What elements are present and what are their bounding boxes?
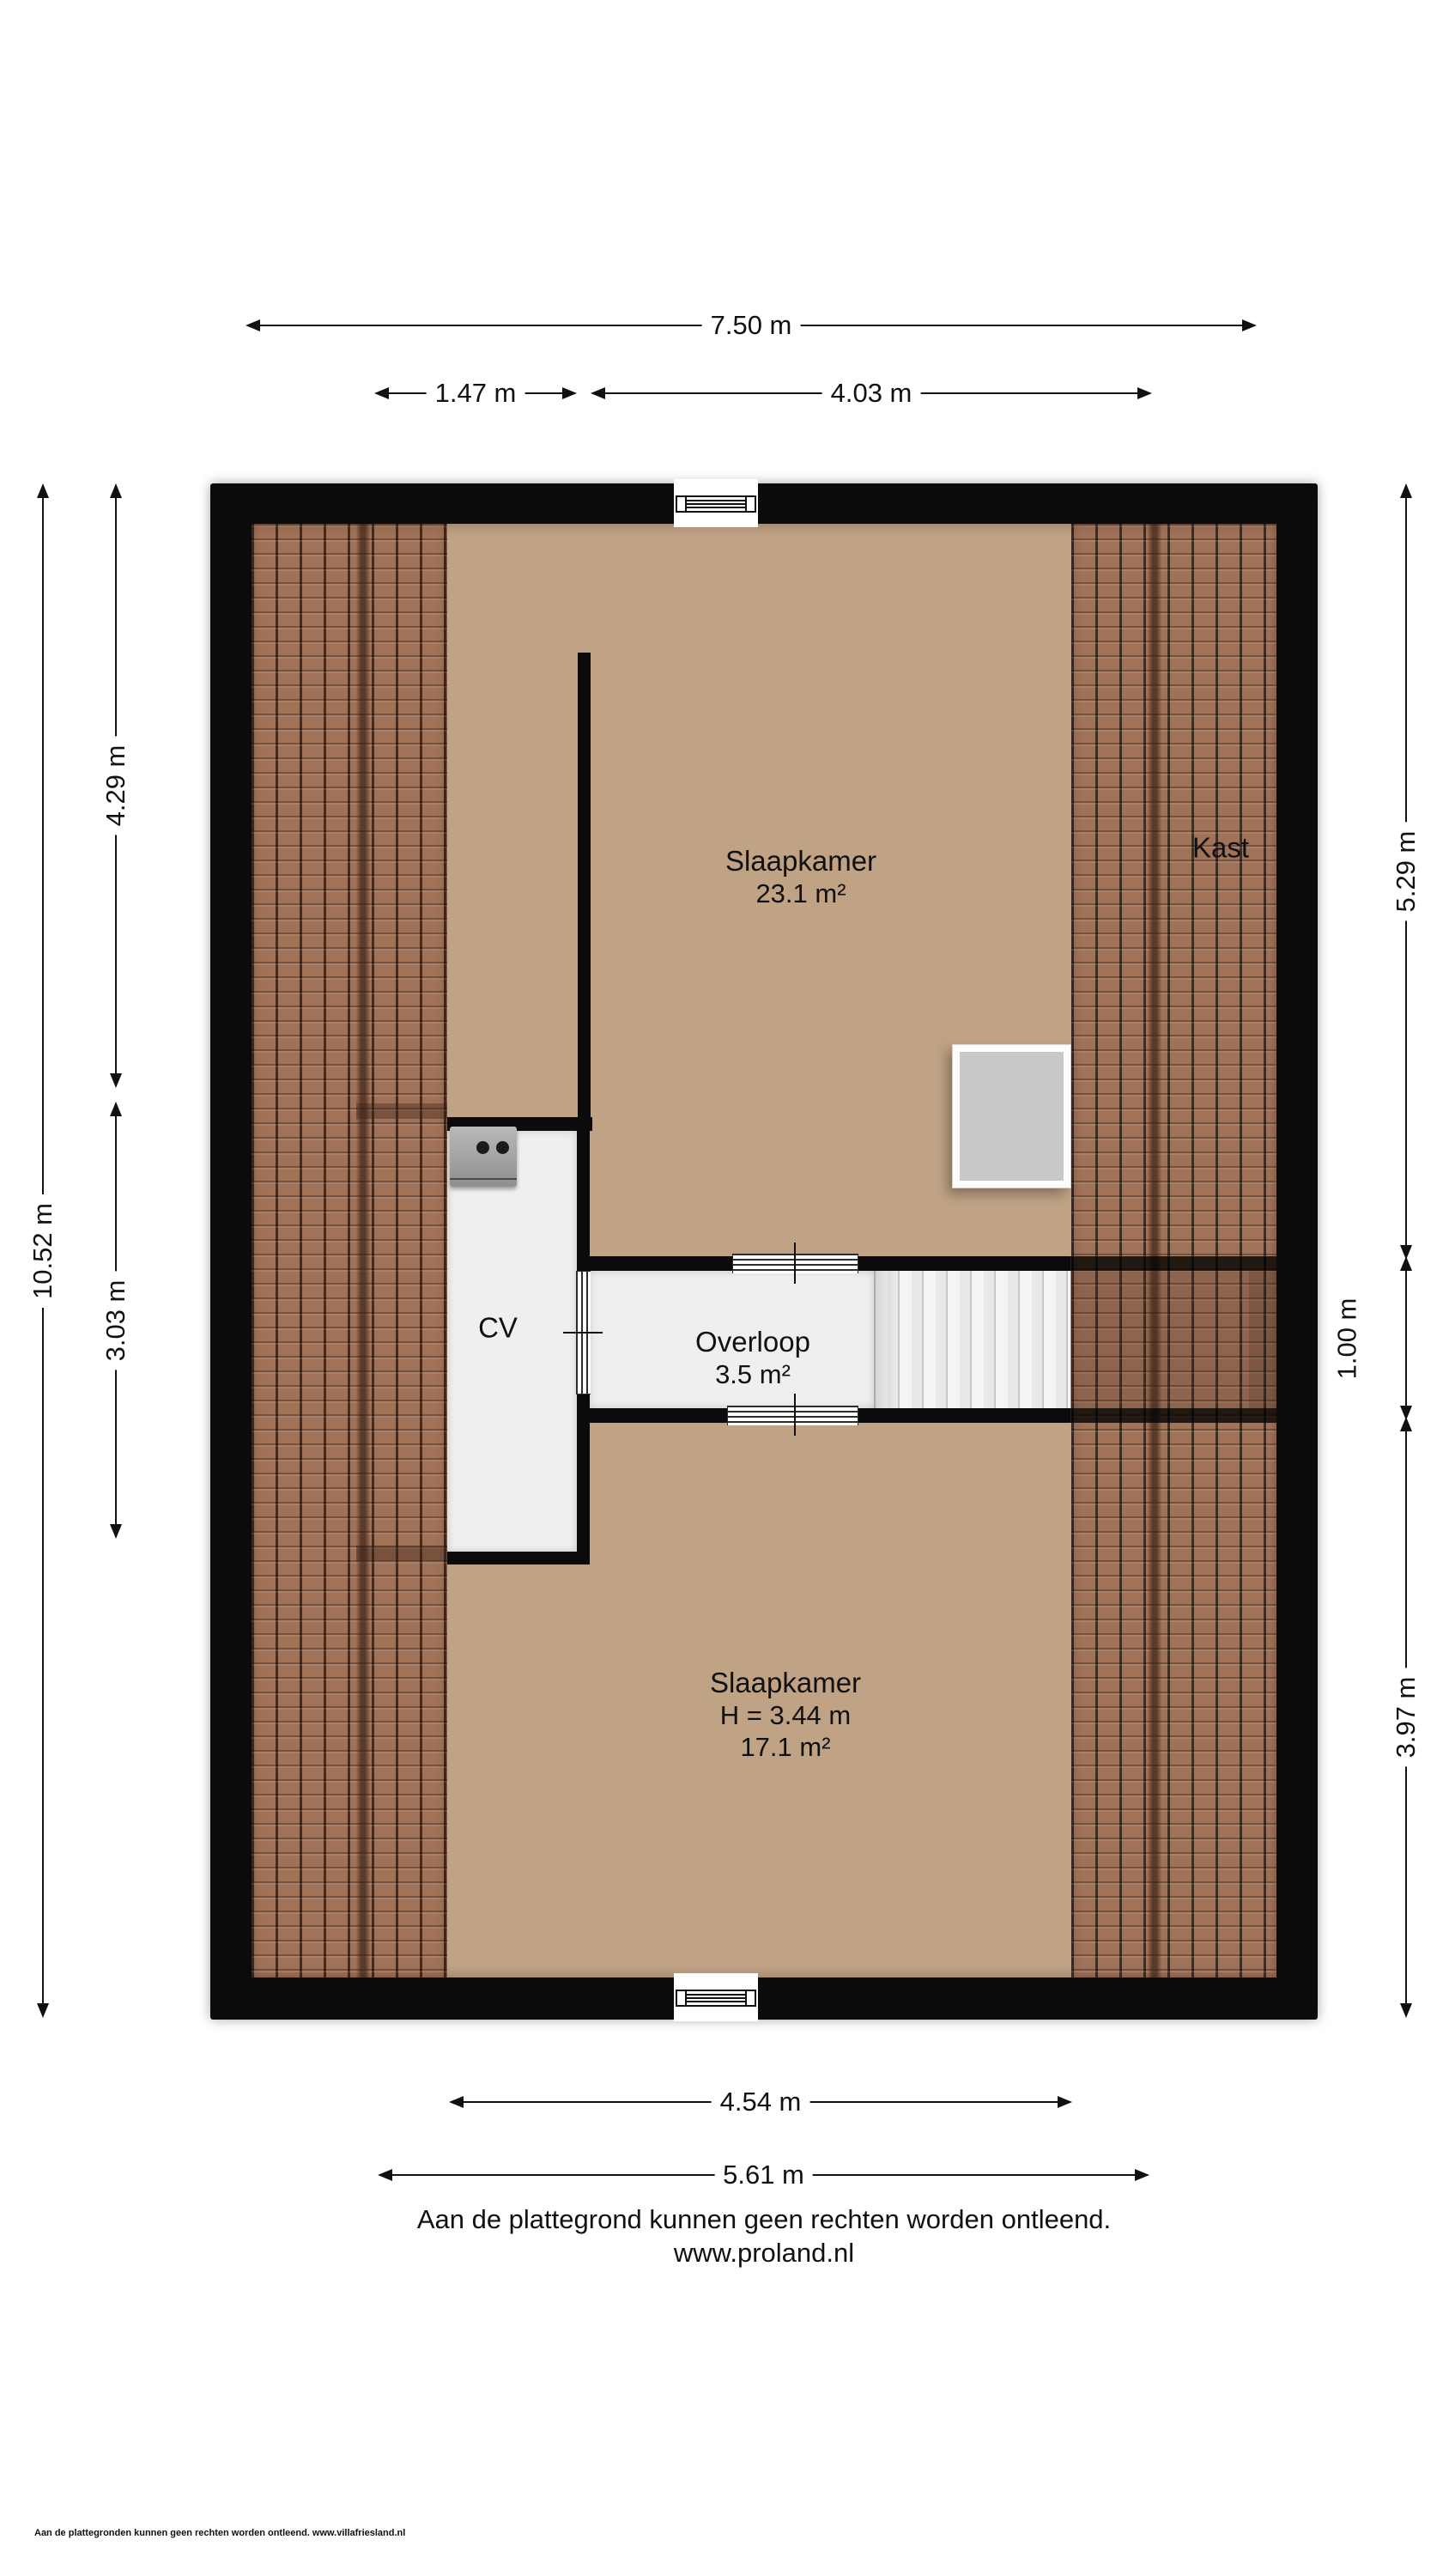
dim-top-left: 1.47 m [376, 392, 575, 394]
dim-top-left-label: 1.47 m [427, 379, 525, 408]
dim-bottom-outer-label: 5.61 m [714, 2160, 813, 2190]
door-bedroom-bottom [727, 1406, 858, 1425]
bedroom-bottom-name: Slaapkamer [710, 1667, 861, 1700]
door-tick-top [794, 1242, 796, 1284]
dim-bottom-outer: 5.61 m [379, 2174, 1148, 2176]
door-tick-cv [563, 1332, 603, 1334]
landing-wall-top-right [857, 1256, 1070, 1271]
dim-left-upper-label: 4.29 m [101, 737, 130, 835]
dim-right-upper: 5.29 m [1405, 485, 1407, 1258]
dim-top-right: 4.03 m [592, 392, 1150, 394]
roof-slope-left [252, 524, 447, 1978]
roof-shade-stairwell [1070, 1271, 1276, 1408]
cv-wall-right-lower [577, 1393, 590, 1564]
micro-footer: Aan de plattegronden kunnen geen rechten… [34, 2528, 405, 2538]
landing-wall-bottom-right [857, 1408, 1070, 1423]
label-landing: Overloop 3.5 m² [695, 1326, 810, 1391]
footer: Aan de plattegrond kunnen geen rechten w… [210, 2203, 1318, 2270]
staircase [874, 1271, 1070, 1408]
dim-top-total-label: 7.50 m [702, 311, 801, 340]
landing-wall-bottom-roof [1070, 1408, 1276, 1423]
dim-bottom-inner-label: 4.54 m [712, 2087, 810, 2117]
label-bedroom-bottom: Slaapkamer H = 3.44 m 17.1 m² [710, 1667, 861, 1763]
cv-name: CV [478, 1312, 518, 1346]
dim-left-upper: 4.29 m [115, 485, 117, 1086]
landing-wall-top-left [590, 1256, 732, 1271]
dim-left-lower: 3.03 m [115, 1103, 117, 1537]
roof-ridge-line-right [1148, 524, 1161, 1978]
dim-top-total: 7.50 m [247, 325, 1255, 326]
knee-wall [578, 653, 591, 1131]
footer-website: www.proland.nl [210, 2237, 1318, 2270]
landing-wall-top-roof [1070, 1256, 1276, 1271]
label-cv: CV [478, 1312, 518, 1346]
window-bottom [674, 1973, 758, 2021]
roof-shade-cv-bottom [356, 1546, 447, 1561]
landing-area: 3.5 m² [695, 1359, 810, 1391]
dim-left-total: 10.52 m [42, 485, 44, 2016]
dim-right-middle-label: 1.00 m [1332, 1292, 1363, 1384]
floorplan-page: Slaapkamer 23.1 m² Kast CV Overloop 3.5 … [0, 0, 1449, 2576]
footer-disclaimer: Aan de plattegrond kunnen geen rechten w… [210, 2203, 1318, 2237]
skylight-window [953, 1045, 1070, 1188]
cv-wall-bottom [447, 1552, 590, 1564]
dim-right-upper-label: 5.29 m [1391, 823, 1421, 921]
door-tick-bottom [794, 1394, 796, 1436]
bedroom-bottom-height: H = 3.44 m [710, 1700, 861, 1732]
landing-wall-bottom-left [590, 1408, 727, 1423]
bedroom-bottom-area: 17.1 m² [710, 1731, 861, 1763]
bedroom-top-name: Slaapkamer [725, 845, 876, 878]
dim-left-total-label: 10.52 m [28, 1194, 58, 1307]
roof-slope-right [1071, 524, 1276, 1978]
dim-bottom-inner: 4.54 m [451, 2101, 1070, 2103]
roof-shade-cv-top [356, 1103, 447, 1119]
roof-ridge-line-left [356, 524, 370, 1978]
closet-name: Kast [1192, 832, 1249, 866]
roof-shade-stairwell-edge [1249, 1271, 1276, 1408]
dim-right-lower-label: 3.97 m [1391, 1668, 1421, 1767]
dim-right-middle: 1.00 m [1405, 1258, 1407, 1419]
window-top [674, 479, 758, 527]
cv-wall-right-upper [577, 1117, 590, 1271]
dim-top-right-label: 4.03 m [822, 379, 921, 408]
dim-right-lower: 3.97 m [1405, 1419, 1407, 2016]
bedroom-top-area: 23.1 m² [725, 878, 876, 910]
dim-left-lower-label: 3.03 m [101, 1271, 130, 1370]
window-top-symbol [676, 495, 756, 513]
cv-boiler-icon [450, 1127, 517, 1187]
window-bottom-symbol [676, 1990, 756, 2007]
landing-name: Overloop [695, 1326, 810, 1359]
label-closet: Kast [1192, 832, 1249, 866]
label-bedroom-top: Slaapkamer 23.1 m² [725, 845, 876, 910]
